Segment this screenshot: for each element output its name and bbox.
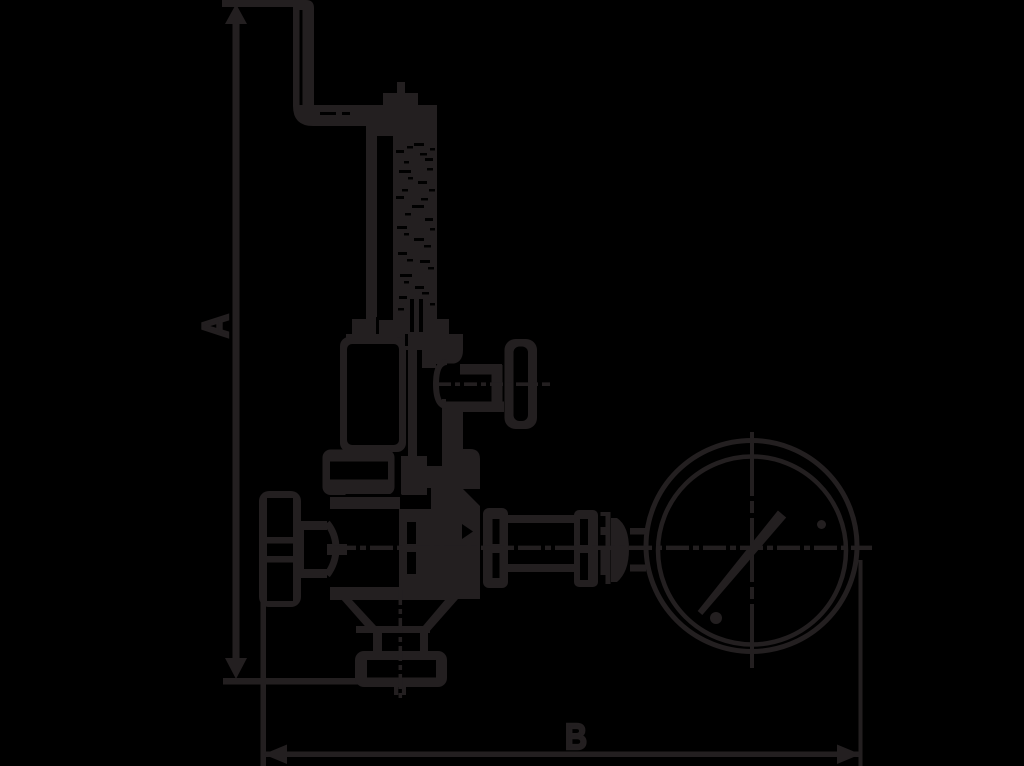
svg-text:A: A: [195, 314, 236, 338]
svg-text:B: B: [565, 716, 587, 757]
